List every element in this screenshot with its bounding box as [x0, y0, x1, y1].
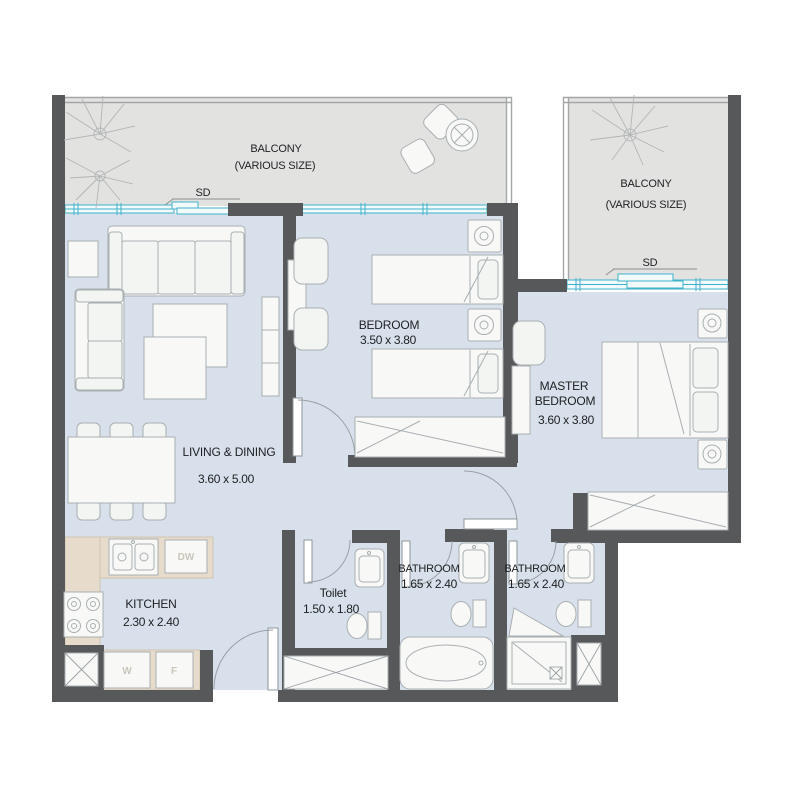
- wall-bottom-mid: [278, 690, 618, 702]
- balcony-right-floor: [569, 98, 728, 282]
- master-bedroom-label-line2: BEDROOM: [535, 394, 596, 408]
- balcony-right-sd-label: SD: [643, 257, 658, 269]
- pillow: [478, 354, 498, 393]
- dining-furniture: [68, 423, 175, 520]
- wall-bath1-bath2: [494, 530, 507, 690]
- wall-right-upper: [728, 95, 741, 543]
- master-door: [464, 519, 517, 529]
- dining-chair: [77, 501, 100, 520]
- master-bedroom-label-line1: MASTER: [540, 379, 589, 393]
- balcony-left-label: BALCONY: [250, 143, 302, 155]
- wall-toilet-bath1: [387, 530, 400, 690]
- master-sliding-door-panel: [618, 274, 673, 281]
- sofa-cushion: [195, 241, 231, 294]
- balcony-right-size-note: (VARIOUS SIZE): [606, 199, 687, 211]
- wall-master-step: [503, 279, 567, 292]
- nightstand: [698, 309, 727, 338]
- wc-tank: [473, 600, 486, 627]
- washer-label: W: [122, 666, 132, 677]
- master-chair: [513, 321, 545, 365]
- bedroom-chair: [294, 308, 328, 350]
- bedroom-door: [293, 398, 302, 456]
- dressing-table: [512, 366, 530, 434]
- wall-bath1-top: [445, 529, 494, 542]
- living-room-dims: 3.60 x 5.00: [198, 472, 255, 486]
- bathroom2-dims: 1.65 x 2.40: [508, 577, 565, 591]
- wc-bowl: [556, 602, 576, 627]
- bedroom-label: BEDROOM: [359, 318, 420, 332]
- bedroom-dims: 3.50 x 3.80: [360, 333, 417, 347]
- master-sliding-door-panel: [627, 281, 683, 288]
- entry-closet: [284, 656, 388, 689]
- sofa-arm: [109, 232, 122, 294]
- side-table: [68, 241, 98, 277]
- dining-chair: [143, 501, 166, 520]
- pillow: [693, 348, 718, 388]
- dining-chair: [110, 501, 133, 520]
- sofa-arm: [231, 232, 244, 294]
- dishwasher-label: DW: [178, 552, 195, 563]
- wc-tank: [578, 600, 591, 627]
- wall-kitchen-stub: [200, 650, 213, 690]
- wall-bath2-top: [551, 529, 573, 542]
- loveseat-arm: [76, 378, 123, 390]
- toilet-door: [304, 540, 312, 583]
- loveseat-cushion: [88, 303, 122, 341]
- balcony-right-label: BALCONY: [620, 178, 672, 190]
- kitchen-label: KITCHEN: [125, 597, 176, 611]
- nightstand: [468, 220, 501, 252]
- wc-tank: [368, 612, 381, 639]
- master-bedroom-dims: 3.60 x 3.80: [538, 413, 595, 427]
- wall-left: [52, 95, 65, 702]
- sofa-cushion: [122, 241, 158, 294]
- kitchen-dims: 2.30 x 2.40: [123, 615, 180, 629]
- nightstand: [698, 440, 727, 469]
- sofa-cushion: [158, 241, 195, 294]
- floor-plan: DW W F: [0, 0, 800, 800]
- loveseat-cushion: [88, 341, 122, 378]
- living-sliding-door-panel: [177, 208, 230, 214]
- balcony-left-sd-label: SD: [196, 187, 211, 199]
- fridge-label: F: [171, 666, 177, 677]
- bathroom2-label: BATHROOM: [504, 563, 565, 575]
- nightstand: [468, 309, 501, 341]
- pillow: [693, 392, 718, 432]
- dining-table: [68, 437, 175, 503]
- pillow: [478, 260, 498, 299]
- wc-bowl: [347, 614, 367, 639]
- tv-console: [262, 297, 279, 396]
- bathroom1-label: BATHROOM: [398, 563, 459, 575]
- coffee-table: [144, 337, 206, 399]
- wall-top-pier: [228, 203, 303, 216]
- loveseat-arm: [76, 290, 123, 302]
- bedroom-chair: [294, 238, 328, 284]
- bathroom1-dims: 1.65 x 2.40: [401, 577, 458, 591]
- wall-wardrobe-stub: [573, 493, 588, 543]
- balcony-left-size-note: (VARIOUS SIZE): [235, 160, 316, 172]
- wc-bowl: [451, 602, 471, 627]
- floor-plan-page: DW W F: [0, 0, 800, 800]
- entrance-door: [268, 628, 278, 690]
- living-room-label: LIVING & DINING: [182, 445, 275, 459]
- toilet-label: Toilet: [320, 586, 348, 600]
- toilet-dims: 1.50 x 1.80: [303, 602, 360, 616]
